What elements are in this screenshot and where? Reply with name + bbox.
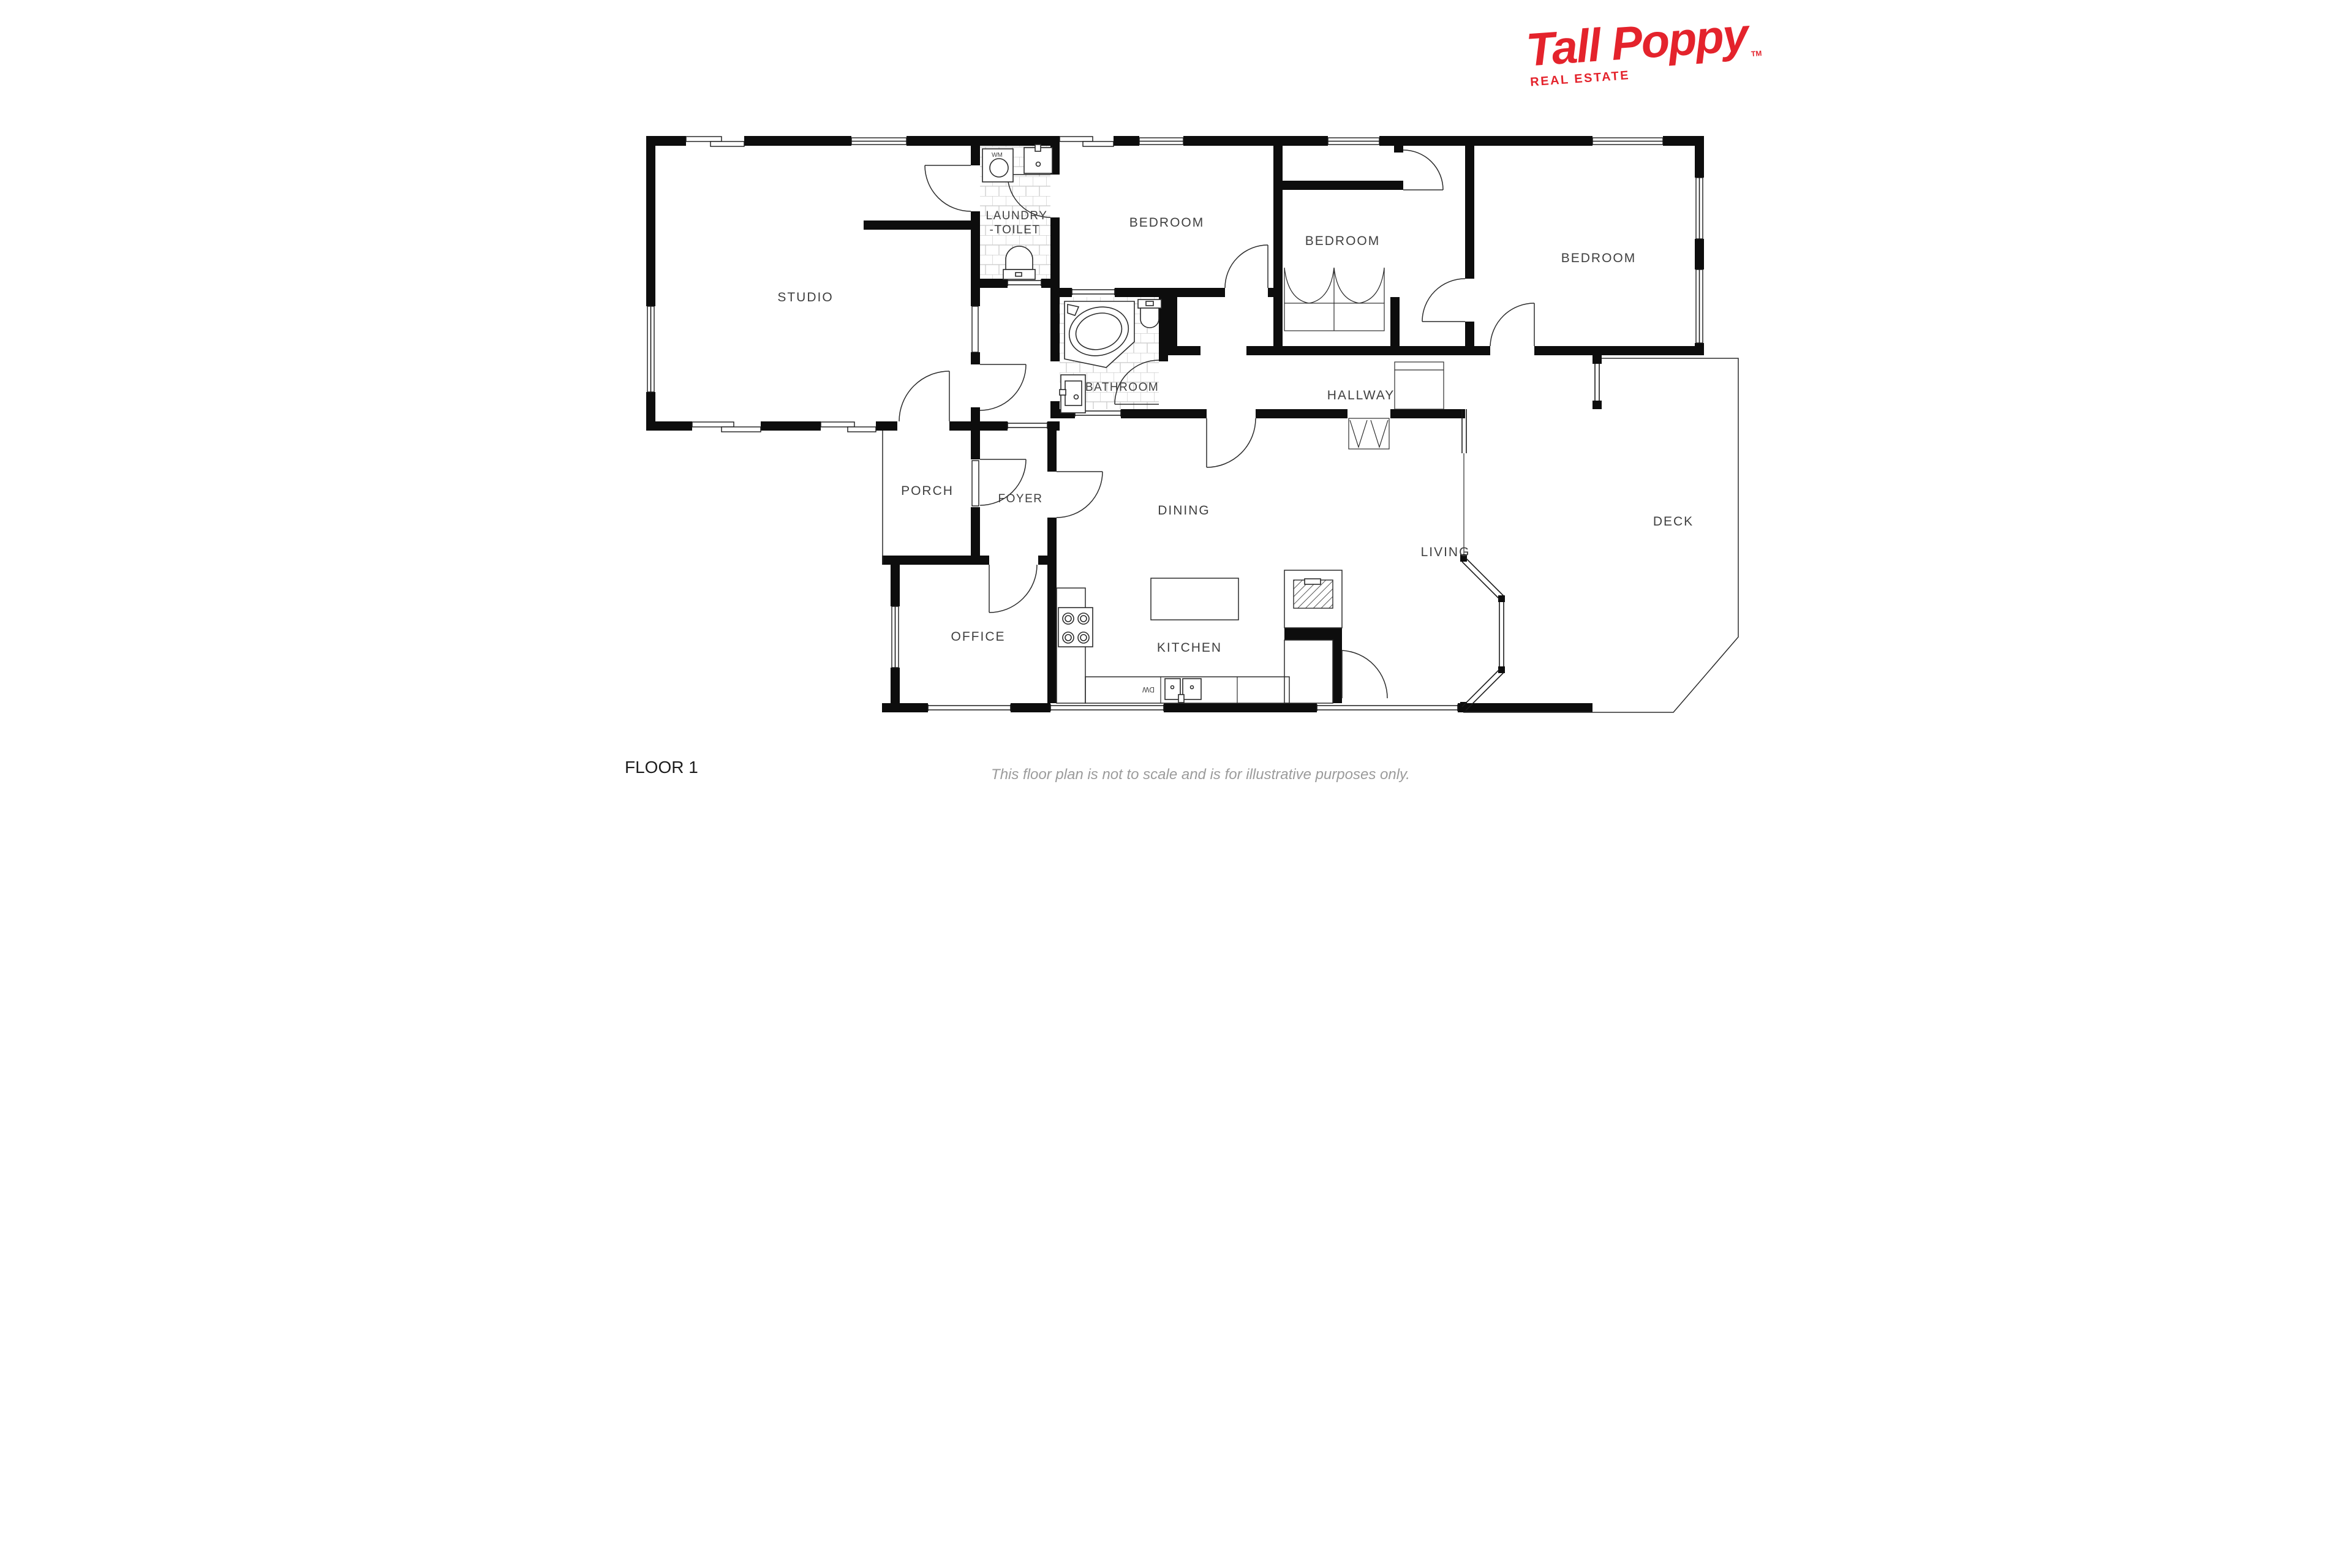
- front-door-panel: [972, 461, 979, 506]
- laundry-sink: [1024, 145, 1052, 173]
- room-label-foyer: FOYER: [998, 492, 1043, 505]
- floor-plan-page: Tall Poppy TM REAL ESTATE: [588, 0, 1764, 784]
- studio-top-window: [851, 138, 907, 145]
- room-label-hallway: HALLWAY: [1327, 388, 1395, 402]
- room-label-bedroom-middle: BEDROOM: [1305, 234, 1381, 248]
- bedroom-middle-top-window: [1328, 138, 1379, 145]
- room-label-laundry-line2: -TOILET: [990, 224, 1041, 236]
- floor-label: FLOOR 1: [625, 758, 698, 777]
- room-label-deck: DECK: [1653, 514, 1694, 529]
- room-label-bedroom-front: BEDROOM: [1129, 216, 1205, 230]
- room-label-office: OFFICE: [951, 630, 1006, 644]
- bedroom-rear-right-window-2: [1696, 269, 1703, 343]
- room-label-bedroom-rear: BEDROOM: [1561, 251, 1637, 265]
- office-left-window: [892, 606, 899, 668]
- brand-trademark-icon: TM: [1751, 49, 1762, 58]
- washing-machine: WM: [982, 149, 1013, 182]
- floor-plan-canvas: Tall Poppy TM REAL ESTATE: [588, 0, 1764, 784]
- stove: [1058, 608, 1093, 647]
- room-label-porch: PORCH: [901, 484, 954, 498]
- room-label-bathroom: BATHROOM: [1085, 381, 1159, 394]
- bathroom-toilet: [1138, 300, 1161, 328]
- room-label-kitchen: KITCHEN: [1157, 641, 1222, 655]
- room-label-studio: STUDIO: [777, 290, 833, 304]
- bedroom-rear-right-window-1: [1696, 178, 1703, 239]
- bathroom-vanity: [1060, 375, 1085, 413]
- room-label-dining: DINING: [1158, 503, 1210, 518]
- page-background: [588, 0, 1764, 784]
- bedroom-rear-top-window: [1593, 138, 1663, 145]
- washing-machine-label: WM: [992, 152, 1003, 159]
- vestibule-pocket-door: [972, 306, 978, 352]
- kitchen-sink: [1165, 679, 1201, 703]
- dishwasher-label: DW: [1142, 685, 1155, 694]
- bedroom-front-top-window: [1139, 138, 1183, 145]
- studio-left-window: [647, 306, 654, 392]
- room-label-laundry-line1: LAUNDRY: [986, 209, 1048, 222]
- disclaimer-text: This floor plan is not to scale and is f…: [991, 766, 1410, 783]
- room-label-living: LIVING: [1421, 545, 1471, 559]
